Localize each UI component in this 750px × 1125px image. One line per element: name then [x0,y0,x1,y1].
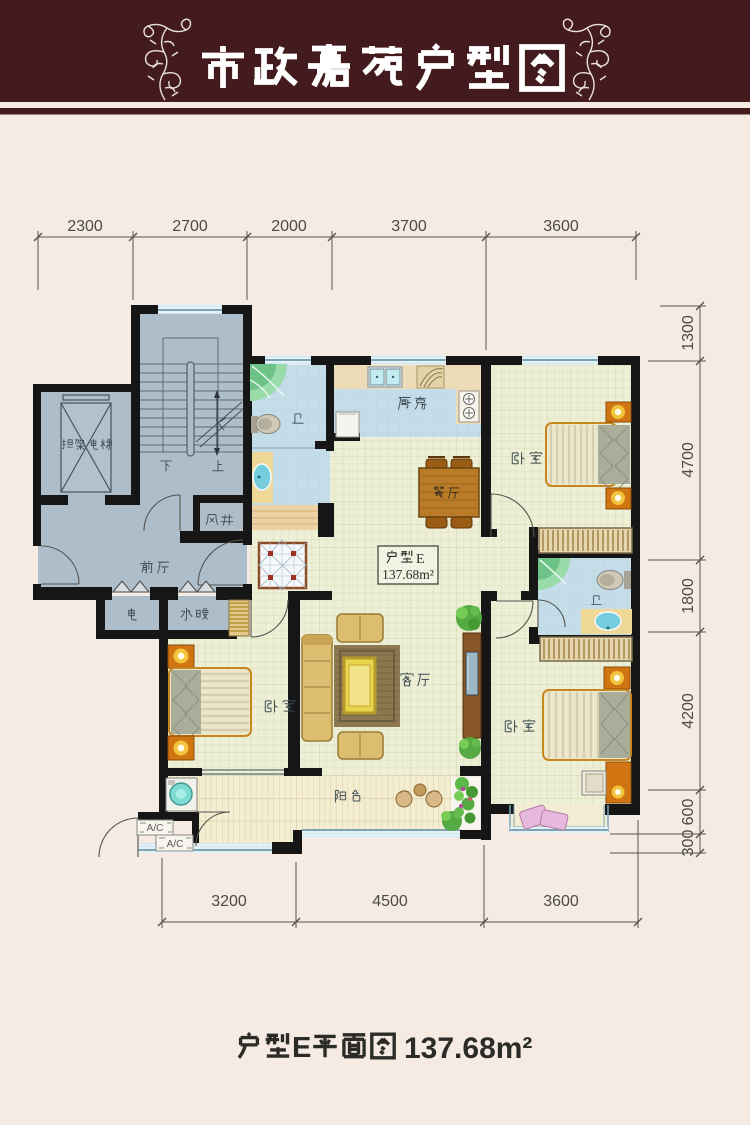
svg-text:3600: 3600 [543,893,579,910]
svg-text:1800: 1800 [680,578,697,614]
svg-text:E: E [416,552,425,567]
svg-text:3700: 3700 [391,218,427,235]
svg-text:137.68m²: 137.68m² [382,567,434,582]
svg-text:A/C: A/C [167,839,184,850]
svg-text:2700: 2700 [172,218,208,235]
svg-text:2300: 2300 [67,218,103,235]
svg-text:4500: 4500 [372,893,408,910]
svg-text:4700: 4700 [680,442,697,478]
svg-text:4200: 4200 [680,693,697,729]
svg-text:A/C: A/C [147,823,164,834]
svg-text:3600: 3600 [543,218,579,235]
svg-text:E: E [292,1032,311,1064]
svg-text:600: 600 [680,799,697,826]
svg-text:3200: 3200 [211,893,247,910]
svg-text:2000: 2000 [271,218,307,235]
svg-text:300: 300 [680,830,697,857]
svg-text:137.68m²: 137.68m² [404,1032,532,1065]
svg-text:1300: 1300 [680,315,697,351]
